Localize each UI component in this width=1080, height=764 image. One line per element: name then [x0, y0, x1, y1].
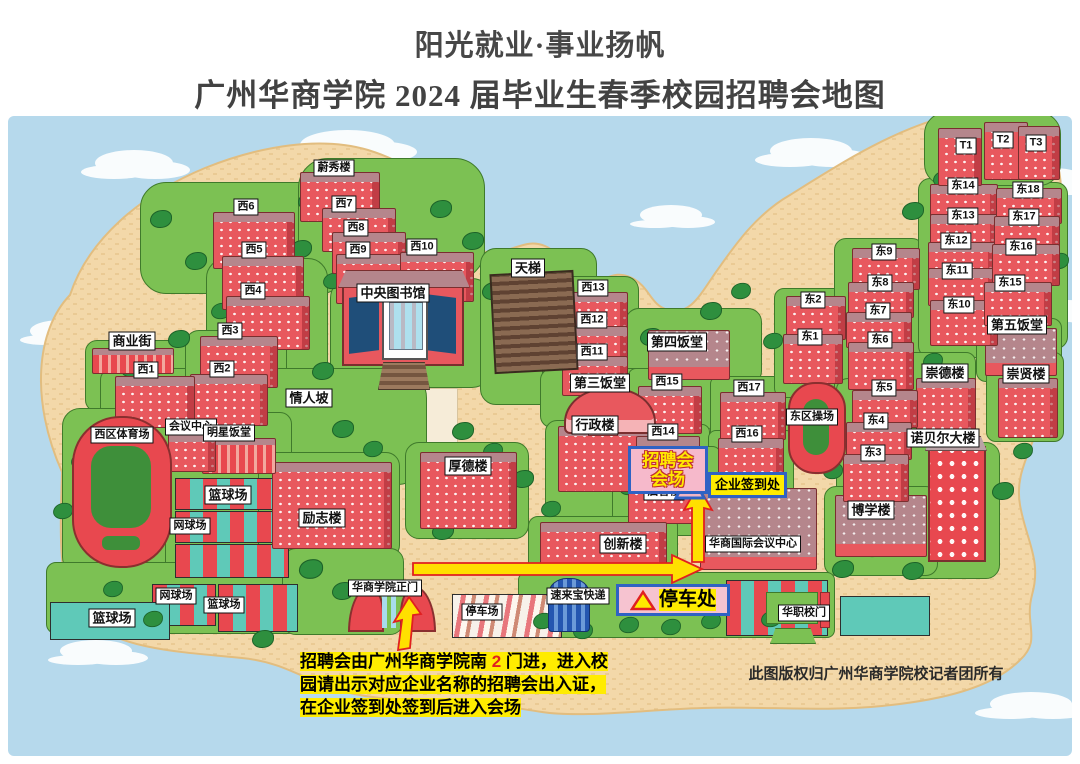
sports-court: [175, 544, 289, 578]
map-label-东5: 东5: [871, 380, 896, 397]
library-steps: [378, 362, 430, 390]
library-right-panel: [426, 294, 456, 354]
tree: [252, 630, 274, 648]
map-label-华商国际会议中心: 华商国际会议中心: [705, 536, 801, 553]
fair-venue-highlight: 招聘会 会场: [628, 446, 708, 494]
map-label-西15: 西15: [651, 374, 682, 391]
map-label-东2: 东2: [800, 292, 825, 309]
map-label-第三饭堂: 第三饭堂: [570, 374, 630, 393]
map-label-天梯: 天梯: [511, 259, 545, 278]
title-line2: 广州华商学院 2024 届毕业生春季校园招聘会地图: [0, 70, 1080, 115]
map-label-诺贝尔大楼: 诺贝尔大楼: [906, 429, 979, 448]
west-stadium-infield-2: [102, 536, 140, 550]
copyright-text: 此图版权归广州华商学院校记者团所有: [748, 663, 1003, 684]
sky-ladder-stairs: [489, 270, 578, 374]
map-label-中央图书馆: 中央图书馆: [356, 284, 429, 303]
cloud: [60, 640, 132, 662]
map-label-第四饭堂: 第四饭堂: [647, 333, 707, 352]
map-label-情人坡: 情人坡: [285, 389, 332, 408]
tree: [1013, 443, 1033, 459]
map-label-东13: 东13: [947, 208, 978, 225]
east-track-infield: [803, 399, 829, 455]
company-sign-in-highlight: 企业签到处: [708, 472, 787, 498]
map-label-西16: 西16: [731, 426, 762, 443]
map-label-创新楼: 创新楼: [599, 535, 646, 554]
map-label-东3: 东3: [860, 445, 885, 462]
map-label-东4: 东4: [863, 413, 888, 430]
map-label-东18: 东18: [1012, 182, 1043, 199]
map-label-明星饭堂: 明星饭堂: [203, 425, 255, 442]
map-label-东8: 东8: [867, 275, 892, 292]
main-gate-pillars: [382, 594, 400, 628]
note-gate-number: 2: [492, 652, 501, 671]
parking-label-text: 停车处: [659, 589, 716, 611]
tree: [992, 482, 1014, 500]
courier-station-building: [548, 578, 590, 632]
title-line1: 阳光就业·事业扬帆: [0, 22, 1080, 64]
map-label-西10: 西10: [406, 239, 437, 256]
map-label-速来宝快递: 速来宝快递: [547, 588, 610, 605]
building: [998, 378, 1058, 438]
huazhi-gate-base: [770, 628, 816, 644]
map-label-西14: 西14: [647, 424, 678, 441]
map-label-蔚秀楼: 蔚秀楼: [314, 160, 355, 177]
map-label-东1: 东1: [797, 329, 822, 346]
parking-triangle-icon: [630, 589, 656, 611]
cloud: [990, 692, 1072, 716]
map-label-博学楼: 博学楼: [847, 501, 894, 520]
map-label-西11: 西11: [577, 344, 608, 361]
map-label-T1: T1: [956, 138, 977, 155]
map-label-崇贤楼: 崇贤楼: [1002, 365, 1049, 384]
map-label-励志楼: 励志楼: [298, 509, 345, 528]
map-label-西17: 西17: [733, 380, 764, 397]
map-label-东14: 东14: [947, 178, 978, 195]
map-label-篮球场: 篮球场: [204, 597, 245, 614]
map-label-商业街: 商业街: [108, 332, 155, 351]
map-label-西5: 西5: [241, 242, 266, 259]
cloud: [770, 138, 852, 164]
map-label-东9: 东9: [871, 244, 896, 261]
sports-court: [840, 596, 930, 636]
library-left-panel: [349, 294, 379, 354]
map-label-篮球场: 篮球场: [88, 609, 135, 628]
map-label-东10: 东10: [943, 297, 974, 314]
cloud: [640, 205, 702, 225]
map-label-东16: 东16: [1005, 239, 1036, 256]
east-track: [788, 382, 846, 474]
map-label-网球场: 网球场: [170, 518, 211, 535]
campus-map: 招聘会 会场 企业签到处 停车处 招聘会由广州华商学院南 2 门进，进入校园请出…: [8, 116, 1072, 756]
map-label-东15: 东15: [994, 275, 1025, 292]
map-label-厚德楼: 厚德楼: [444, 457, 491, 476]
map-label-西9: 西9: [345, 242, 370, 259]
fair-venue-line2: 会场: [631, 470, 705, 489]
library-glass-door: [389, 302, 423, 350]
map-label-西8: 西8: [343, 220, 368, 237]
tree: [452, 422, 474, 440]
map-label-T2: T2: [993, 132, 1014, 149]
map-label-西3: 西3: [217, 323, 242, 340]
building: [272, 462, 392, 549]
map-label-东12: 东12: [940, 233, 971, 250]
cloud: [30, 320, 92, 342]
page-title: 阳光就业·事业扬帆 广州华商学院 2024 届毕业生春季校园招聘会地图: [0, 0, 1080, 115]
map-label-西2: 西2: [209, 361, 234, 378]
building: [700, 488, 817, 570]
map-label-篮球场: 篮球场: [204, 486, 251, 505]
cloud: [300, 130, 395, 160]
tree: [731, 283, 751, 299]
map-label-东11: 东11: [942, 263, 973, 280]
cloud: [95, 150, 173, 176]
map-label-西1: 西1: [133, 362, 158, 379]
map-label-东区操场: 东区操场: [786, 409, 838, 426]
west-stadium-infield: [91, 446, 151, 528]
entry-instructions-note: 招聘会由广州华商学院南 2 门进，进入校园请出示对应企业名称的招聘会出入证，在企…: [300, 650, 610, 719]
map-label-东6: 东6: [867, 332, 892, 349]
map-label-停车场: 停车场: [462, 604, 503, 621]
map-label-东17: 东17: [1008, 209, 1039, 226]
map-label-第五饭堂: 第五饭堂: [987, 316, 1047, 335]
map-label-华商学院正门: 华商学院正门: [348, 580, 422, 597]
map-label-崇德楼: 崇德楼: [921, 364, 968, 383]
map-label-网球场: 网球场: [156, 588, 197, 605]
map-label-T3: T3: [1026, 135, 1047, 152]
map-label-行政楼: 行政楼: [571, 416, 618, 435]
fair-venue-line1: 招聘会: [631, 451, 705, 470]
map-label-西7: 西7: [331, 196, 356, 213]
map-label-西区体育场: 西区体育场: [91, 427, 154, 444]
parking-highlight: 停车处: [616, 584, 730, 616]
map-label-西6: 西6: [233, 199, 258, 216]
map-label-西4: 西4: [240, 283, 265, 300]
note-part1: 招聘会由广州华商学院南: [300, 652, 492, 671]
nobel-tower-building: [928, 446, 986, 562]
map-label-西12: 西12: [576, 312, 607, 329]
map-label-华职校门: 华职校门: [778, 605, 830, 622]
map-label-东7: 东7: [865, 303, 890, 320]
map-label-西13: 西13: [577, 280, 608, 297]
